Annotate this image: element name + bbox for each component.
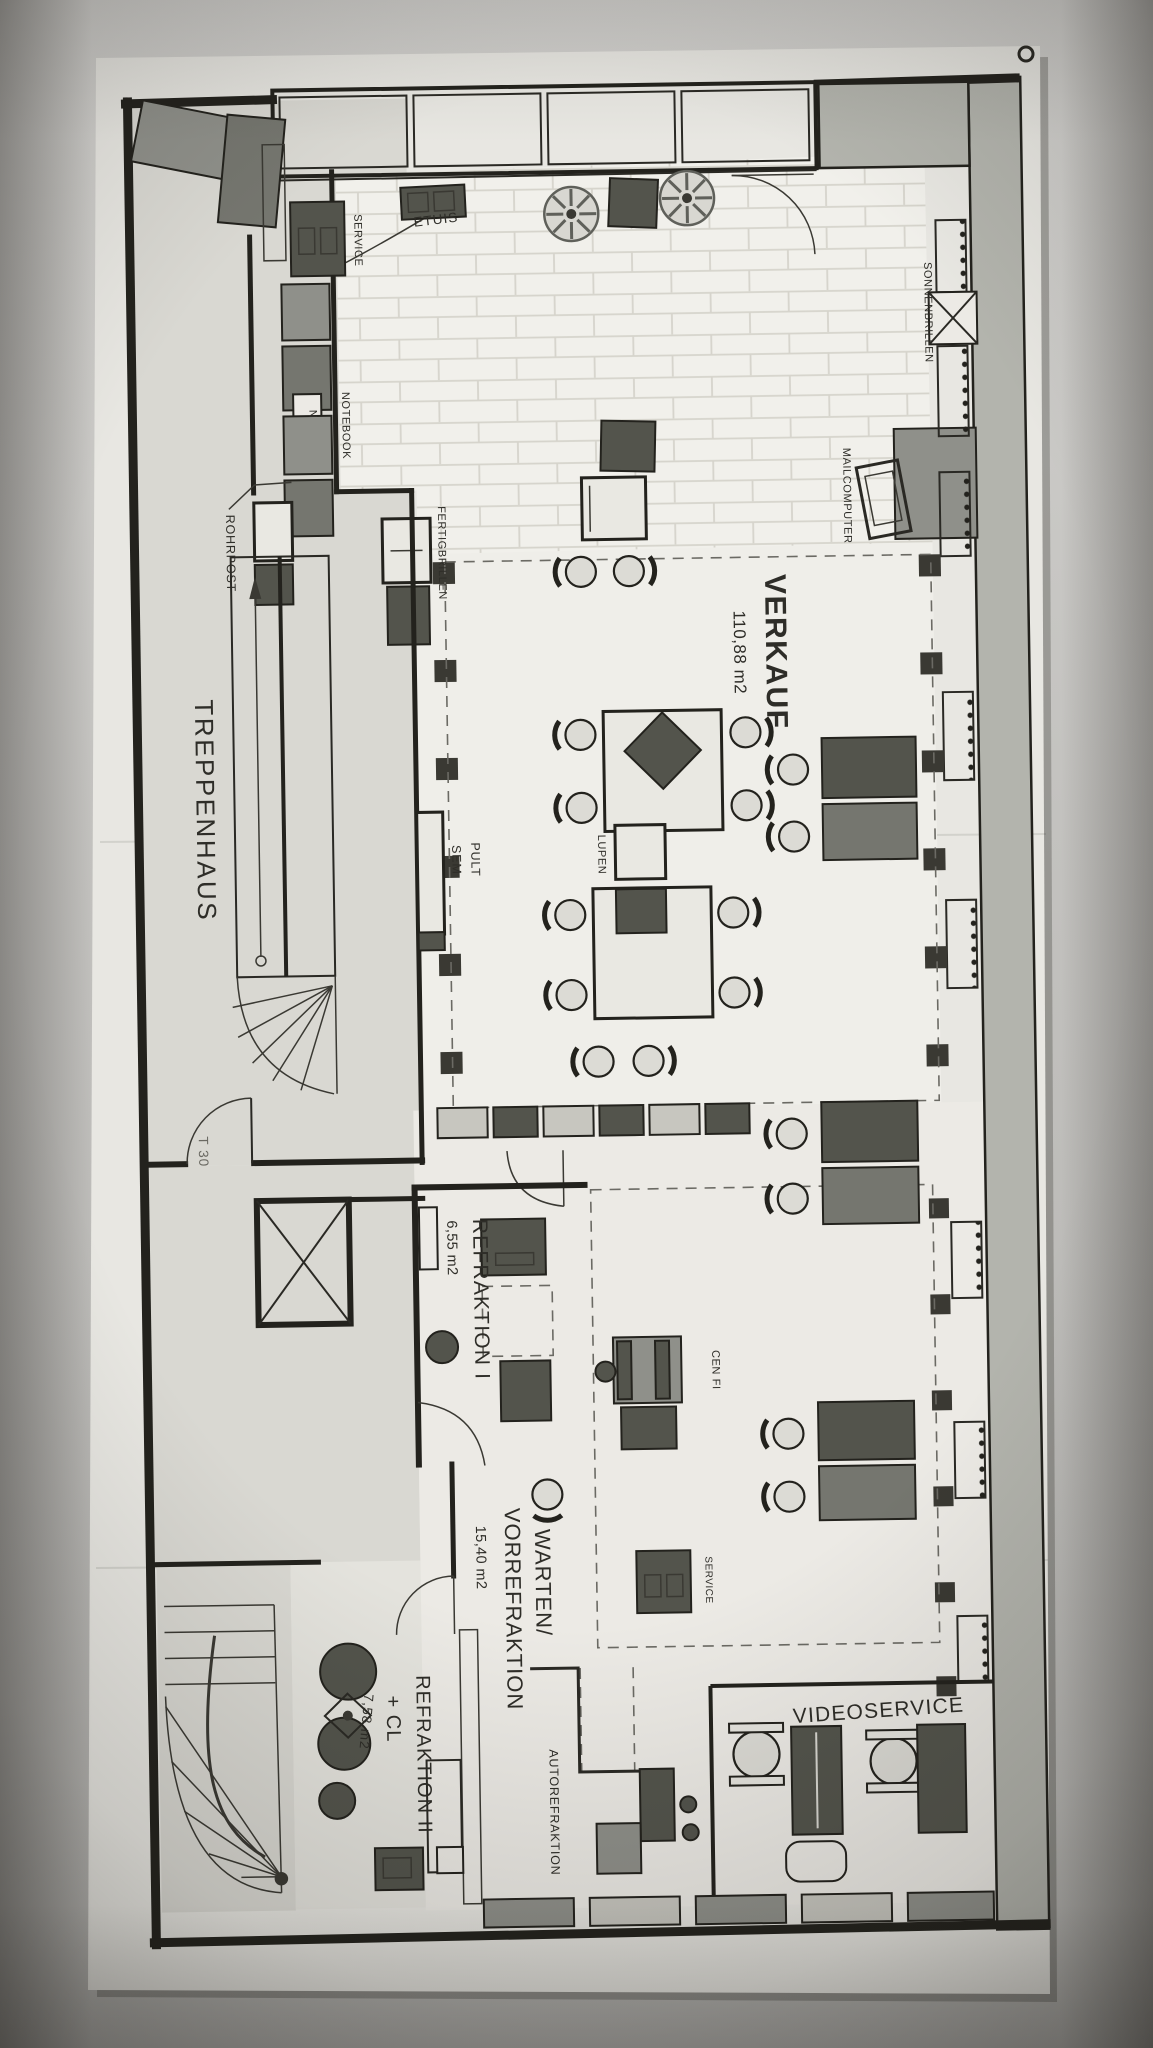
plan-content: TREPPENHAUS VERKAUF 110,88 m2 REFRAKTION… <box>125 77 1049 1945</box>
label-service-front: SERVICE <box>351 214 364 266</box>
floorplan-drawing: TREPPENHAUS VERKAUF 110,88 m2 REFRAKTION… <box>0 0 1153 2048</box>
label-notebook: NOTEBOOK <box>339 392 352 459</box>
service-mid-counter <box>636 1550 691 1613</box>
video-console <box>917 1724 967 1833</box>
label-verkauf: VERKAUF <box>758 574 793 730</box>
label-service-mid: SERVICE <box>702 1556 714 1603</box>
label-sonnenbrillen: SONNENBRILLEN <box>921 262 935 363</box>
label-rohrpost: ROHRPOST <box>223 515 238 592</box>
fertigbrillen-cabinet <box>382 518 432 645</box>
label-door-t30: T 30 <box>196 1136 211 1167</box>
display-gondola <box>600 421 655 472</box>
label-pult: PULT <box>468 842 483 876</box>
floorplan-photo: TREPPENHAUS VERKAUF 110,88 m2 REFRAKTION… <box>0 0 1153 2048</box>
ceiling-fan <box>660 171 715 226</box>
label-refraktion1-area: 6,55 m2 <box>443 1220 460 1275</box>
label-refraktion1: REFRAKTION I <box>468 1219 494 1381</box>
label-cen-fi: CEN FI <box>709 1350 722 1390</box>
door-t30-leaf <box>251 1098 252 1163</box>
lupen-cabinet <box>615 825 666 880</box>
label-sem: SEM <box>449 845 463 875</box>
display-table <box>581 477 646 540</box>
round-table <box>320 1643 377 1700</box>
label-warten-line2: VORREFRAKTION <box>500 1508 528 1711</box>
label-warten-area: 15,40 m2 <box>472 1526 489 1590</box>
sem-pult-desk <box>417 812 445 950</box>
stool <box>426 1331 458 1363</box>
label-treppenhaus: TREPPENHAUS <box>189 699 222 922</box>
label-warten-line1: WARTEN/ <box>530 1529 557 1637</box>
label-refraktion2-cl: + CL <box>382 1695 405 1742</box>
label-fertigbrillen: FERTIGBRILLEN <box>435 506 448 600</box>
label-lupen: LUPEN <box>595 835 608 875</box>
label-verkauf-area: 110,88 m2 <box>730 610 750 694</box>
label-autorefraktion: AUTOREFRAKTION <box>546 1749 562 1875</box>
label-mailcomputer: MAILCOMPUTER <box>840 448 854 544</box>
stool <box>319 1783 356 1820</box>
rohrpost-station <box>254 502 293 561</box>
label-notebook-n: N <box>306 410 318 419</box>
projector <box>375 1848 424 1891</box>
display-gondola <box>608 178 658 228</box>
label-refraktion2: REFRAKTION II <box>411 1675 435 1834</box>
ceiling-fan <box>544 187 599 242</box>
